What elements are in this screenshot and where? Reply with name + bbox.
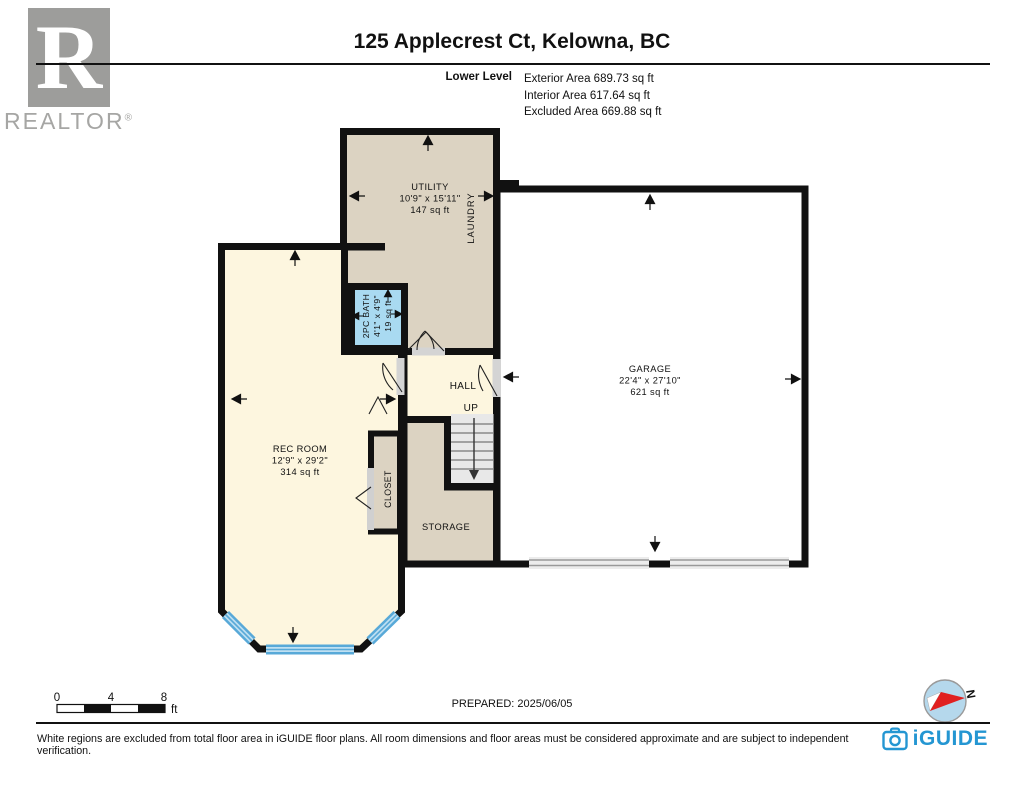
realtor-r-glyph: R xyxy=(36,6,102,108)
realtor-wordmark: REALTOR® xyxy=(2,108,136,135)
opening-hall-garage xyxy=(493,359,502,397)
label-garage-area: 621 sq ft xyxy=(630,387,669,397)
label-bath: 2PC BATH 4'1" x 4'9" 19 sq ft xyxy=(361,294,393,339)
label-rec-dims: 12'9" x 29'2" xyxy=(272,456,328,466)
footer-disclaimer: White regions are excluded from total fl… xyxy=(37,733,877,757)
label-rec-name: REC ROOM xyxy=(273,444,327,454)
label-bath-name: 2PC BATH xyxy=(361,294,371,339)
realtor-logo: R xyxy=(28,8,110,107)
opening-closet xyxy=(367,468,374,530)
label-utility-area: 147 sq ft xyxy=(410,205,449,215)
label-utility-name: UTILITY xyxy=(411,182,448,192)
footer-rule xyxy=(36,722,990,724)
iguide-wordmark: iGUIDE xyxy=(913,727,988,751)
label-utility-dims: 10'9" x 15'11" xyxy=(399,194,460,204)
floorplan-page: R REALTOR® 125 Applecrest Ct, Kelowna, B… xyxy=(0,0,1024,791)
label-storage: STORAGE xyxy=(422,522,470,532)
label-up: UP xyxy=(464,403,479,414)
label-garage-name: GARAGE xyxy=(629,364,671,374)
page-title: 125 Applecrest Ct, Kelowna, BC xyxy=(0,30,1024,54)
stairs xyxy=(444,414,500,491)
label-hall: HALL xyxy=(450,381,477,392)
label-rec-area: 314 sq ft xyxy=(280,467,319,477)
label-closet: CLOSET xyxy=(383,470,393,508)
iguide-logo: iGUIDE xyxy=(882,727,988,751)
header-rule xyxy=(36,63,990,65)
prepared-date: PREPARED: 2025/06/05 xyxy=(0,698,1024,710)
label-garage-dims: 22'4" x 27'10" xyxy=(619,376,681,386)
label-bath-area: 19 sq ft xyxy=(383,300,393,332)
floorplan-drawing: UTILITY 10'9" x 15'11" 147 sq ft LAUNDRY… xyxy=(0,0,1024,791)
registered-mark: ® xyxy=(125,112,134,123)
label-laundry: LAUNDRY xyxy=(466,192,476,243)
wall-stub-utility xyxy=(347,243,385,251)
label-bath-dims: 4'1" x 4'9" xyxy=(372,295,382,337)
iguide-icon xyxy=(882,727,908,751)
